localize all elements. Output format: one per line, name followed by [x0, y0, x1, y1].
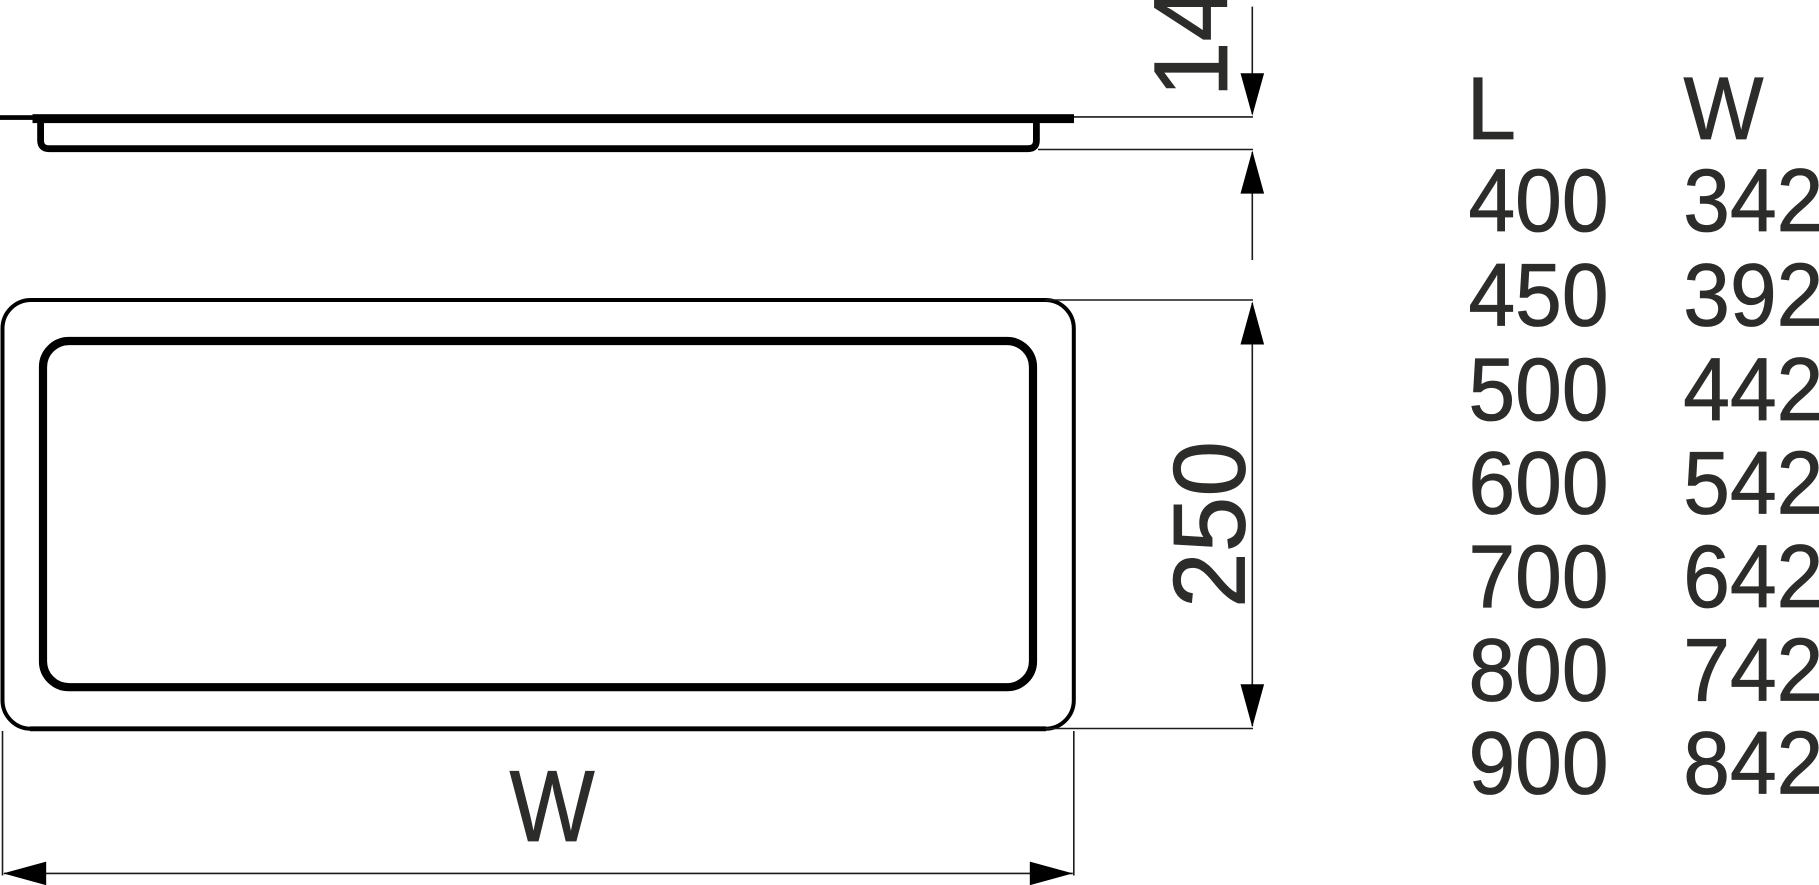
svg-text:842: 842: [1683, 712, 1819, 812]
svg-text:542: 542: [1683, 433, 1819, 533]
svg-text:500: 500: [1469, 339, 1609, 439]
svg-text:600: 600: [1469, 433, 1609, 533]
svg-text:W: W: [510, 751, 595, 863]
svg-text:14: 14: [1133, 0, 1250, 98]
svg-text:900: 900: [1469, 712, 1609, 812]
svg-text:W: W: [1684, 58, 1764, 158]
svg-text:700: 700: [1469, 526, 1609, 626]
svg-text:450: 450: [1469, 245, 1609, 345]
svg-text:L: L: [1467, 58, 1517, 158]
svg-text:250: 250: [1152, 441, 1267, 608]
svg-text:392: 392: [1683, 245, 1819, 345]
svg-text:342: 342: [1683, 150, 1819, 250]
svg-text:400: 400: [1469, 150, 1609, 250]
svg-text:442: 442: [1683, 339, 1819, 439]
svg-text:742: 742: [1683, 619, 1819, 719]
svg-text:800: 800: [1469, 619, 1609, 719]
svg-text:642: 642: [1683, 526, 1819, 626]
